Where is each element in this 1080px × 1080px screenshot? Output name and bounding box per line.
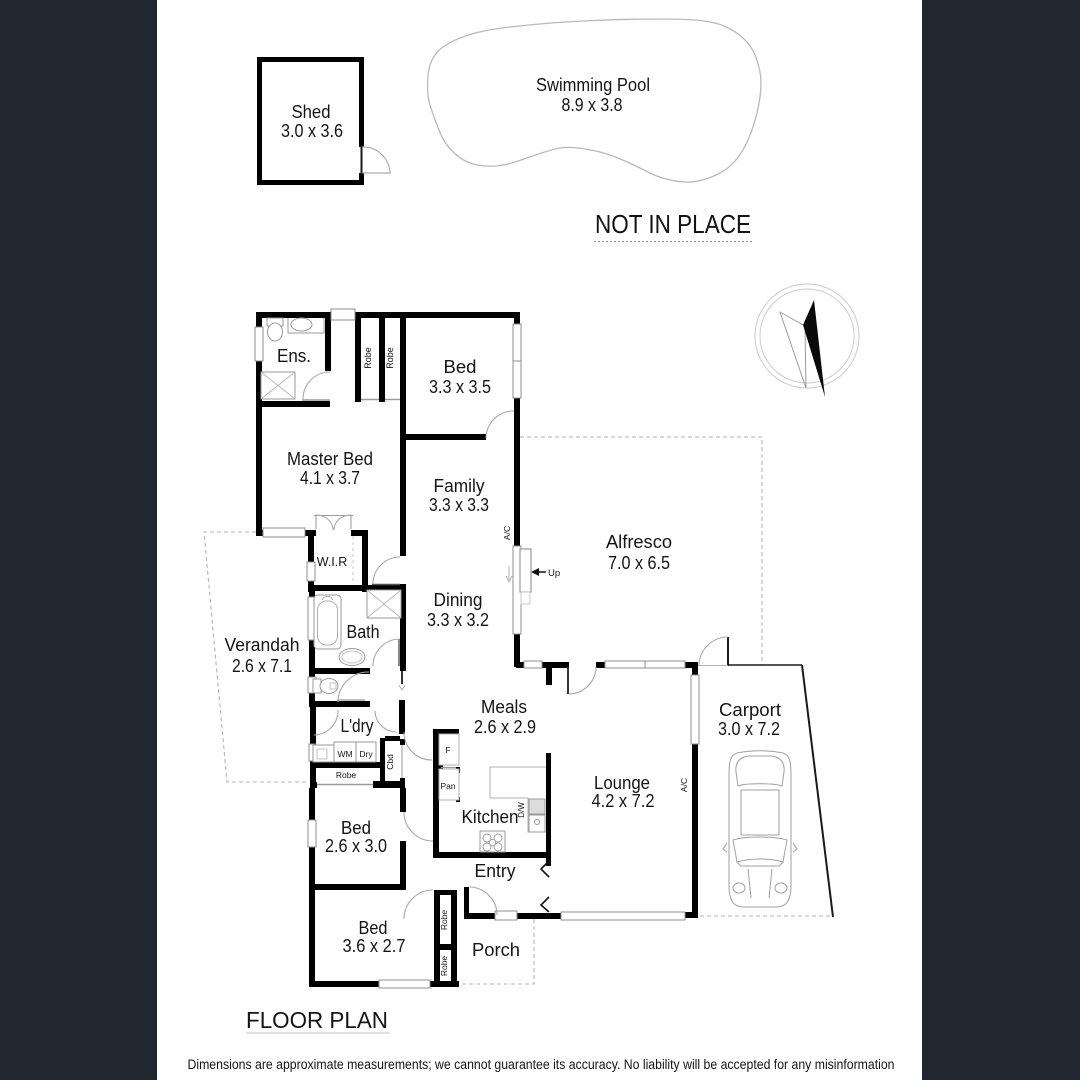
svg-text:Meals: Meals: [481, 697, 527, 717]
svg-text:Swimming Pool: Swimming Pool: [536, 75, 650, 95]
svg-text:WM: WM: [337, 749, 352, 759]
svg-text:W.I.R: W.I.R: [317, 555, 348, 569]
svg-text:3.6 x 2.7: 3.6 x 2.7: [343, 936, 406, 956]
svg-text:A/C: A/C: [502, 526, 512, 540]
svg-text:Cbd: Cbd: [385, 754, 395, 770]
svg-text:Bath: Bath: [347, 622, 380, 642]
svg-text:8.9 x 3.8: 8.9 x 3.8: [562, 95, 623, 115]
svg-text:Bed: Bed: [341, 818, 371, 838]
svg-text:4.1 x 3.7: 4.1 x 3.7: [300, 468, 360, 488]
svg-text:Robe: Robe: [385, 347, 395, 369]
svg-text:Family: Family: [434, 476, 485, 496]
svg-text:Bed: Bed: [444, 357, 477, 377]
svg-text:Dining: Dining: [434, 590, 483, 610]
svg-text:3.0 x 7.2: 3.0 x 7.2: [718, 719, 780, 739]
svg-text:Shed: Shed: [292, 102, 331, 122]
svg-text:Robe: Robe: [363, 347, 373, 369]
svg-text:FLOOR PLAN: FLOOR PLAN: [246, 1007, 388, 1033]
svg-text:Robe: Robe: [439, 910, 449, 931]
svg-text:Porch: Porch: [472, 940, 520, 960]
svg-text:3.3 x 3.3: 3.3 x 3.3: [429, 495, 489, 515]
svg-text:F: F: [445, 745, 450, 755]
svg-text:Alfresco: Alfresco: [606, 532, 672, 552]
svg-text:3.3 x 3.5: 3.3 x 3.5: [429, 377, 491, 397]
svg-text:L'dry: L'dry: [341, 716, 374, 736]
svg-text:Up: Up: [548, 568, 560, 579]
svg-text:2.6 x 7.1: 2.6 x 7.1: [232, 656, 292, 676]
svg-text:Dimensions are approximate mea: Dimensions are approximate measurements;…: [188, 1057, 895, 1072]
svg-text:Entry: Entry: [475, 861, 516, 881]
svg-text:4.2 x 7.2: 4.2 x 7.2: [592, 791, 655, 811]
svg-text:Pan: Pan: [440, 781, 455, 791]
svg-text:Bed: Bed: [359, 918, 388, 938]
svg-text:3.3 x 3.2: 3.3 x 3.2: [427, 610, 489, 630]
svg-text:Dry: Dry: [359, 749, 373, 759]
svg-text:Robe: Robe: [336, 770, 357, 780]
svg-text:7.0 x 6.5: 7.0 x 6.5: [608, 553, 670, 573]
svg-text:A/C: A/C: [679, 778, 689, 792]
svg-text:2.6 x 2.9: 2.6 x 2.9: [474, 717, 536, 737]
svg-text:Robe: Robe: [439, 956, 449, 977]
svg-text:Lounge: Lounge: [594, 773, 650, 793]
svg-text:Kitchen: Kitchen: [462, 807, 519, 827]
svg-text:3.0 x 3.6: 3.0 x 3.6: [281, 121, 343, 141]
svg-text:Ens.: Ens.: [277, 346, 311, 366]
svg-text:Verandah: Verandah: [225, 635, 300, 655]
svg-text:NOT IN PLACE: NOT IN PLACE: [595, 209, 751, 239]
svg-text:2.6 x 3.0: 2.6 x 3.0: [325, 836, 387, 856]
svg-text:Master Bed: Master Bed: [287, 449, 373, 469]
svg-text:Carport: Carport: [719, 700, 781, 720]
